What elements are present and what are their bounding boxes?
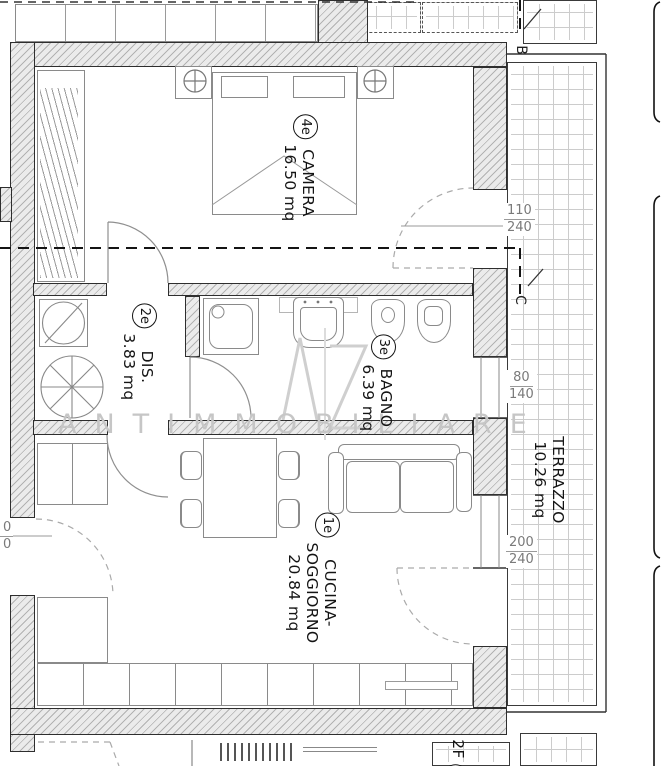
dimension-width: 110 <box>504 203 535 220</box>
room-id-badge: 1e <box>315 513 340 538</box>
room-name: CAMERA <box>299 144 317 221</box>
washing-machine-icon <box>43 302 85 344</box>
dimension-height: 140 <box>506 387 537 403</box>
section-marker-c: C <box>512 295 528 305</box>
room-area: 20.84 mq <box>285 543 303 644</box>
dimension-height: 240 <box>504 220 535 236</box>
dimension-height: 240 <box>506 552 537 568</box>
room-label-neighbor-partial: 2F e <box>443 739 467 766</box>
room-area: 3.83 mq <box>120 333 138 400</box>
room-name: BAGNO <box>377 364 395 431</box>
room-name: DIS. <box>138 333 156 400</box>
lamp-icon <box>184 70 386 92</box>
room-label-bagno: 3e BAGNO 6.39 mq <box>359 334 395 431</box>
sink-tap-dots <box>304 301 333 304</box>
dimension-200x240: 200 240 <box>506 535 537 568</box>
room-label-cucina-soggiorno: 1e CUCINA- SOGGIORNO 20.84 mq <box>285 513 339 644</box>
dimension-width: 80 <box>510 370 533 387</box>
room-id-badge: 4e <box>293 114 318 139</box>
dimension-height: 0 <box>0 537 13 553</box>
dimension-80x140: 80 140 <box>506 370 537 403</box>
dimension-leaders <box>0 226 503 536</box>
dimension-extent-lines <box>654 2 660 766</box>
plan-linework <box>0 0 661 766</box>
dashed-door-arcs <box>36 188 473 766</box>
room-area: 6.39 mq <box>359 364 377 431</box>
room-label-camera: 4e CAMERA 16.50 mq <box>281 114 317 221</box>
room-id-badge: 3e <box>371 334 396 359</box>
room-label-terrazzo: TERRAZZO 10.26 mq <box>531 436 567 523</box>
room-area: 16.50 mq <box>281 144 299 221</box>
dimension-110x240: 110 240 <box>504 203 535 236</box>
dimension-width: 0 <box>0 520 13 537</box>
room-area: 10.26 mq <box>531 436 549 523</box>
watermark: ANTIMMOBILIARE <box>58 409 545 440</box>
room-name: 2F <box>449 739 467 759</box>
dimension-partial-left: 0 0 <box>0 520 13 553</box>
dimension-width: 200 <box>506 535 537 552</box>
section-marker-b: B <box>513 45 529 55</box>
room-name: SOGGIORNO <box>303 543 321 644</box>
window-200x240-fixed <box>473 495 507 568</box>
shower-drain-icon <box>212 306 224 318</box>
room-label-dis: 2e DIS. 3.83 mq <box>120 303 156 400</box>
room-name: TERRAZZO <box>549 436 567 523</box>
section-cut-line <box>0 0 520 294</box>
floor-plan: ANTIMMOBILIARE 4e CAMERA 16.50 mq 2e DIS… <box>0 0 661 766</box>
room-name: CUCINA- <box>321 543 339 644</box>
room-id-badge: 2e <box>132 303 157 328</box>
